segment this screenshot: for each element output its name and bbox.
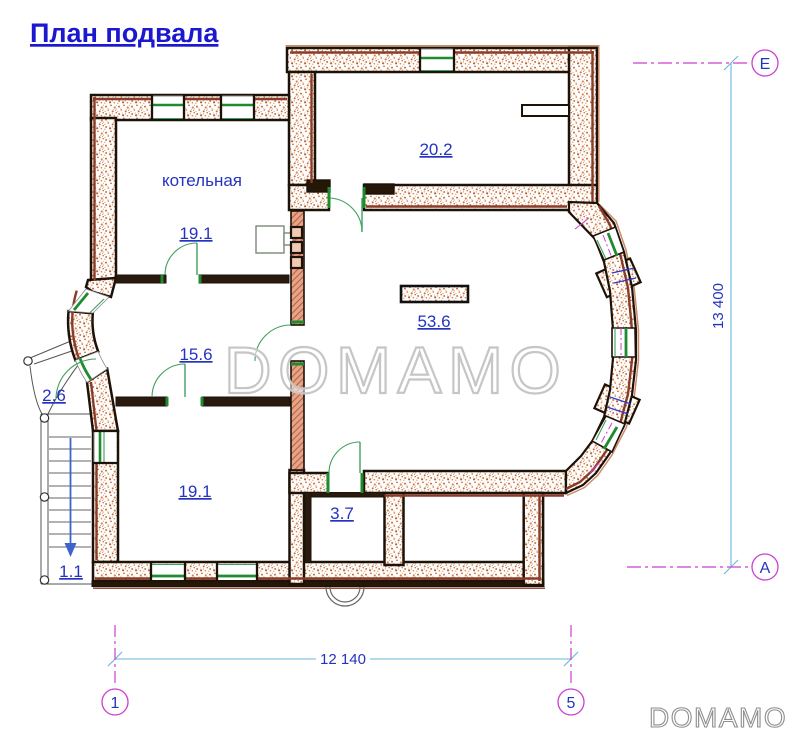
- svg-text:5: 5: [567, 695, 576, 712]
- svg-text:1.1: 1.1: [59, 562, 83, 581]
- svg-text:А: А: [760, 560, 771, 577]
- svg-text:DOMAMO: DOMAMO: [224, 333, 567, 407]
- svg-text:3.7: 3.7: [330, 504, 354, 523]
- svg-text:13 400: 13 400: [710, 283, 727, 329]
- svg-text:План подвала: План подвала: [30, 18, 219, 48]
- svg-text:20.2: 20.2: [419, 140, 452, 159]
- svg-text:19.1: 19.1: [179, 224, 212, 243]
- svg-text:53.6: 53.6: [417, 312, 450, 331]
- svg-text:19.1: 19.1: [178, 482, 211, 501]
- svg-text:12 140: 12 140: [320, 651, 366, 668]
- svg-text:1: 1: [111, 695, 120, 712]
- svg-text:Е: Е: [760, 56, 771, 73]
- svg-text:2.6: 2.6: [42, 386, 66, 405]
- svg-text:DOMAMO: DOMAMO: [649, 702, 787, 733]
- svg-text:15.6: 15.6: [179, 345, 212, 364]
- svg-text:котельная: котельная: [162, 171, 242, 190]
